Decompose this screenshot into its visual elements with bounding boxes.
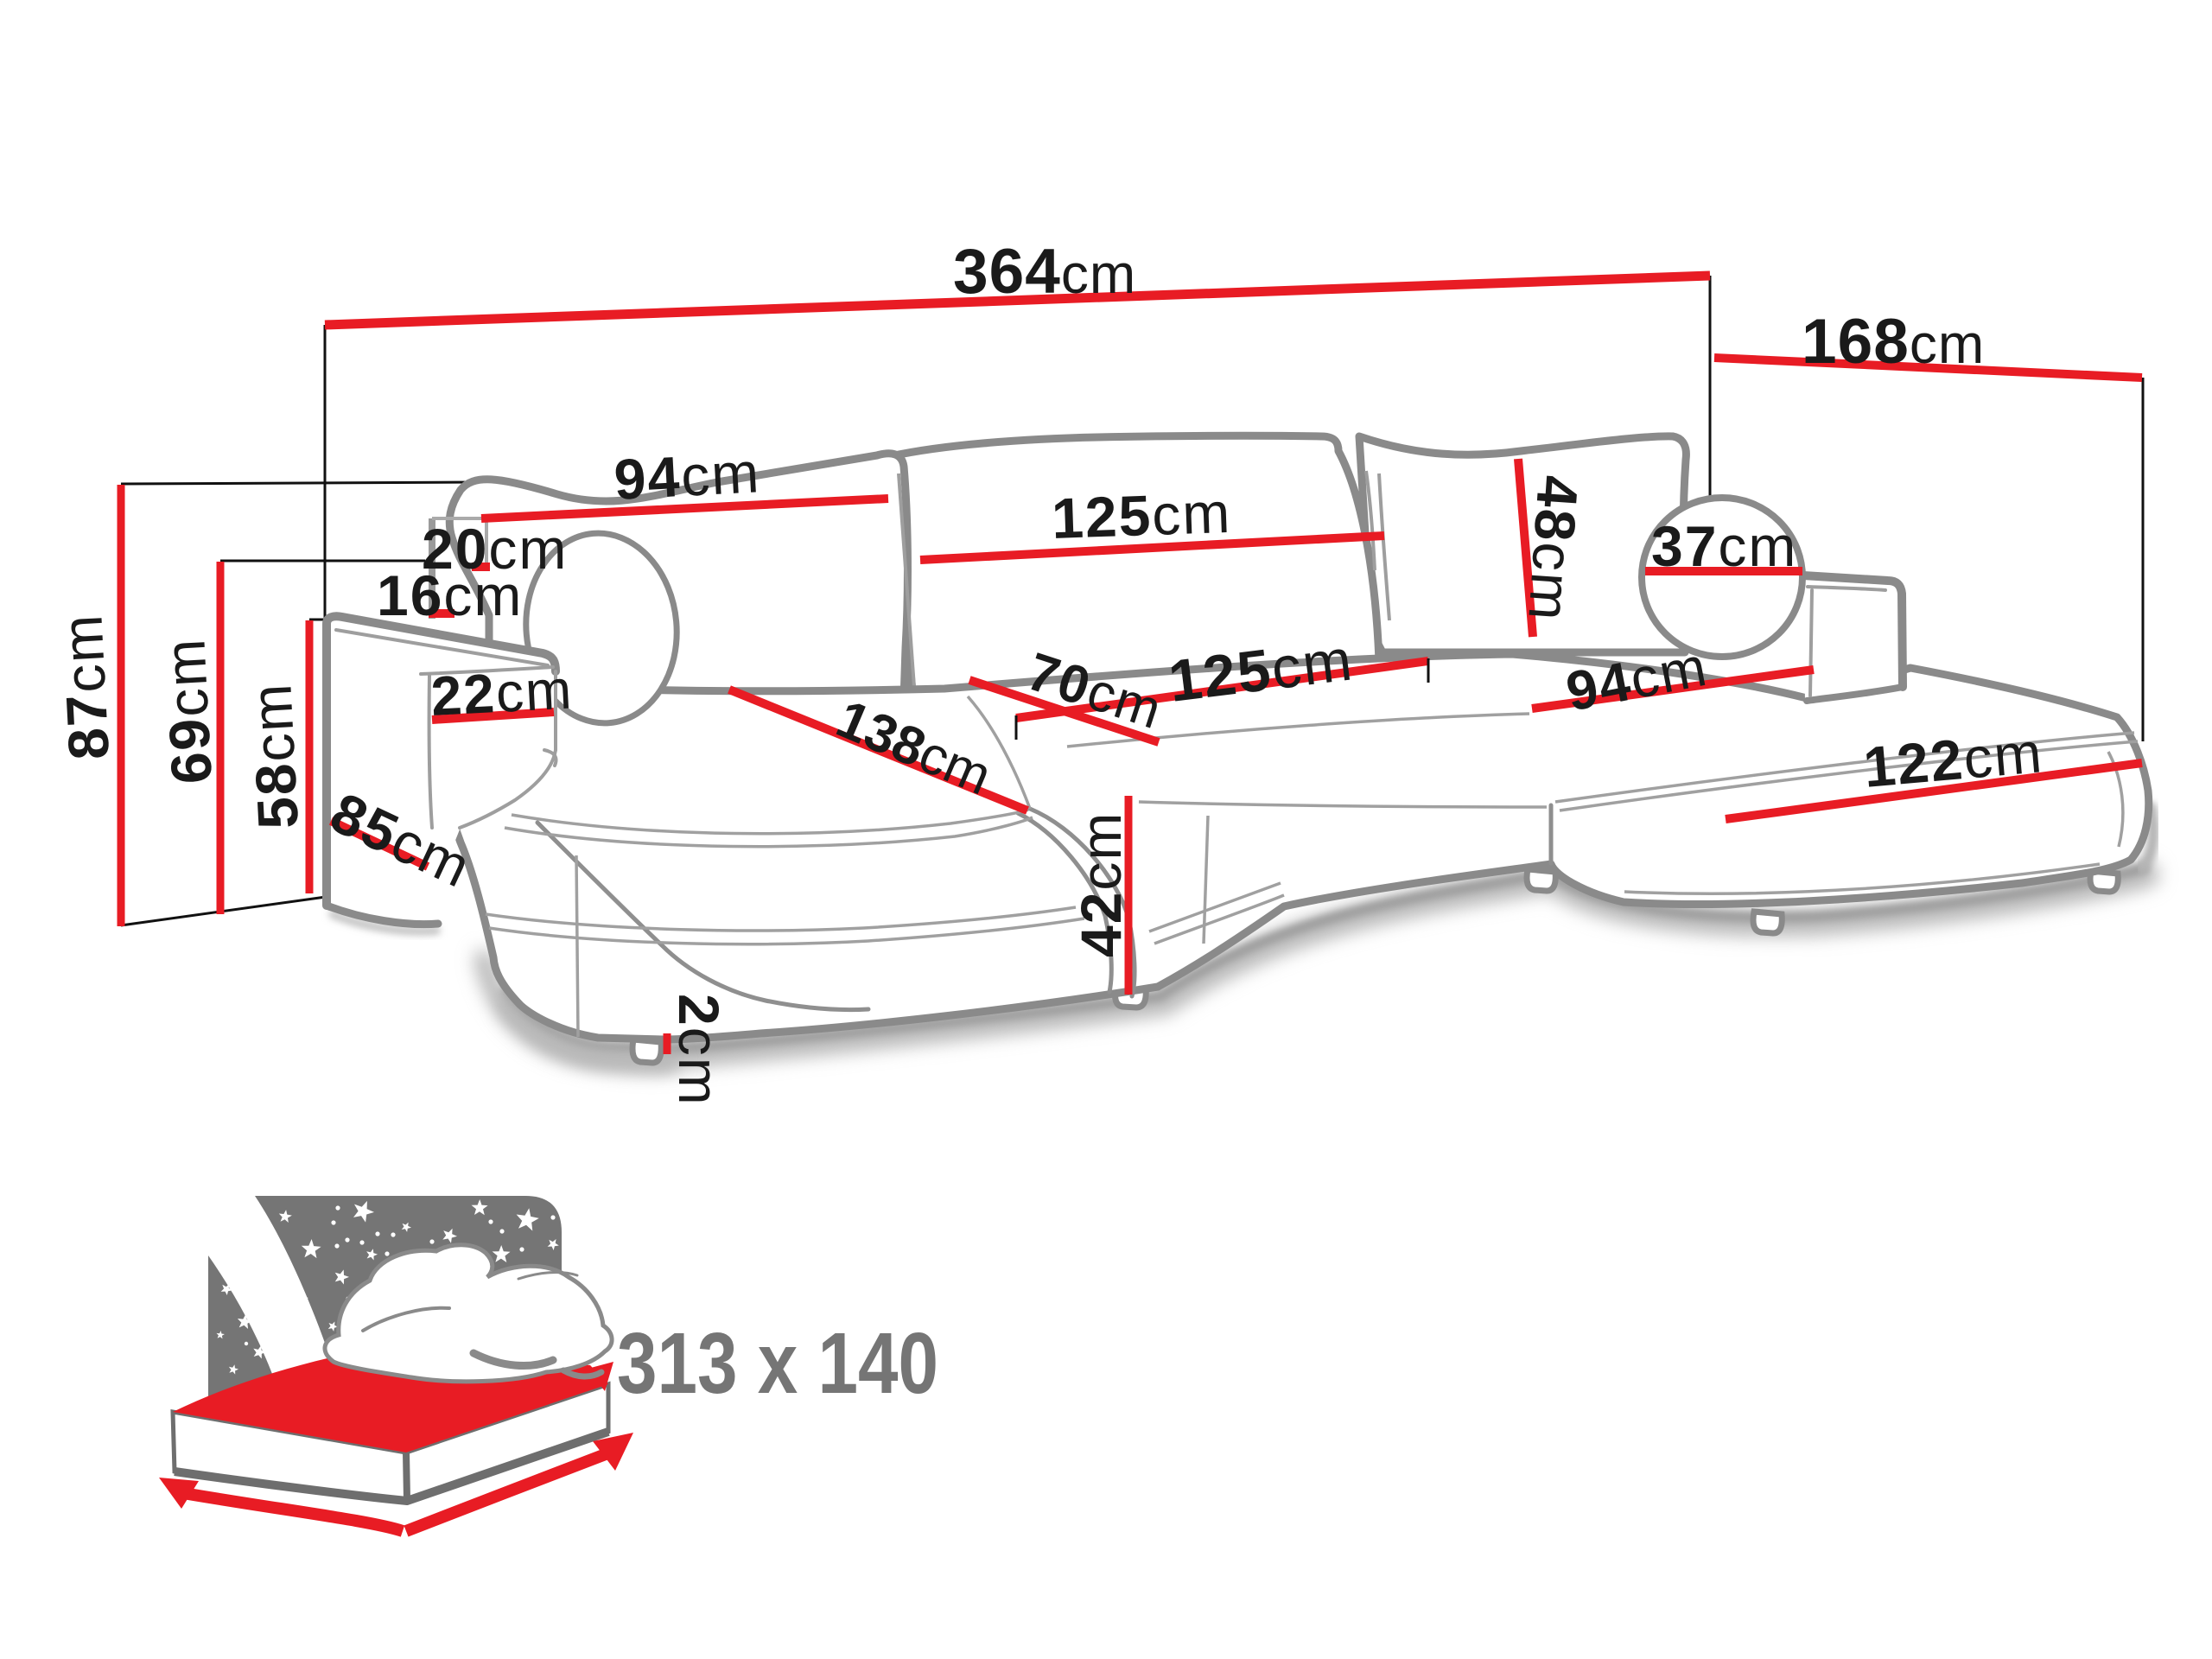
svg-text:94cm: 94cm bbox=[613, 440, 762, 512]
svg-text:48cm: 48cm bbox=[1516, 474, 1591, 624]
svg-text:87cm: 87cm bbox=[49, 612, 121, 761]
svg-text:22cm: 22cm bbox=[429, 658, 575, 728]
svg-text:125cm: 125cm bbox=[1051, 480, 1233, 550]
svg-text:37cm: 37cm bbox=[1651, 514, 1797, 578]
svg-text:168cm: 168cm bbox=[1802, 307, 1985, 377]
svg-text:16cm: 16cm bbox=[377, 563, 523, 627]
svg-text:58cm: 58cm bbox=[238, 681, 310, 830]
svg-text:42cm: 42cm bbox=[1069, 811, 1133, 957]
svg-text:2cm: 2cm bbox=[667, 994, 731, 1107]
svg-text:364cm: 364cm bbox=[953, 237, 1136, 307]
svg-text:69cm: 69cm bbox=[152, 636, 224, 785]
svg-text:313 x 140: 313 x 140 bbox=[617, 1315, 938, 1412]
